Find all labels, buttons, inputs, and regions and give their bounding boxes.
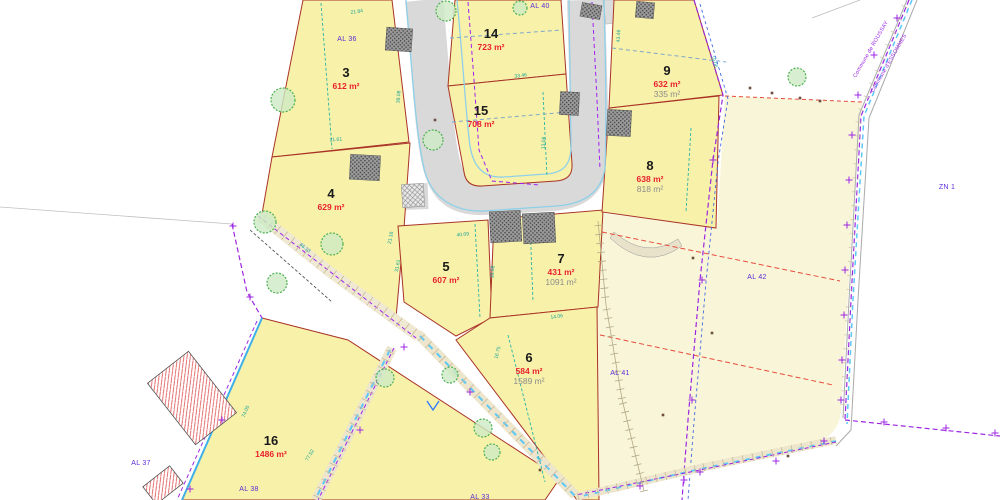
cadastral-ref-al-38: AL 38 (239, 486, 259, 493)
tree-icon (267, 273, 287, 293)
parcel-4-number: 4 (327, 186, 335, 201)
parcel-9-number: 9 (663, 63, 670, 78)
cadastral-ref-al-42: AL 42 (747, 274, 767, 281)
dimension-label: 43.46 (616, 29, 622, 42)
existing-building (349, 154, 380, 181)
parcel-6-area: 584 m² (516, 366, 543, 376)
garage-box (522, 212, 556, 244)
parcel-7-secondary-area: 1091 m² (545, 277, 576, 287)
parcel-15-shape (448, 74, 572, 186)
parcel-9-area: 632 m² (654, 79, 681, 89)
parcel-5-number: 5 (442, 259, 449, 274)
existing-building (559, 92, 579, 116)
parcel-7-area: 431 m² (548, 267, 575, 277)
tree-icon (271, 88, 295, 112)
existing-building (385, 27, 413, 52)
parcel-4-area: 629 m² (318, 202, 345, 212)
tree-icon (442, 367, 458, 383)
parcel-8-secondary-area: 818 m² (637, 184, 664, 194)
cadastral-ref-zn-1: ZN 1 (939, 184, 955, 191)
tree-icon (436, 1, 456, 21)
parcel-3-number: 3 (342, 65, 349, 80)
hatched-house-partial (143, 466, 183, 500)
tree-icon (484, 444, 500, 460)
parcel-3-area: 612 m² (333, 81, 360, 91)
parcel-15-area: 708 m² (468, 119, 495, 129)
dimension-label: 33.08 (489, 265, 496, 278)
cadastral-ref-al-33: AL 33 (470, 494, 490, 500)
parcel-16-number: 16 (264, 433, 278, 448)
dimension-label: 21.61 (329, 136, 342, 143)
parcel-7-number: 7 (557, 251, 564, 266)
parcel-8-area: 638 m² (637, 174, 664, 184)
dimension-label: 13.06 (541, 136, 547, 149)
parcel-15-number: 15 (474, 103, 488, 118)
garage-box (489, 210, 522, 243)
parcel-3-shape (272, 0, 409, 157)
road-reserve-crosshatch (401, 183, 425, 207)
parcel-14-shape (448, 0, 566, 86)
cadastral-plan: 3612 m²4629 m²5607 m²6584 m²1589 m²7431 … (0, 0, 1000, 500)
parcel-6-number: 6 (525, 350, 532, 365)
map-canvas: 3612 m²4629 m²5607 m²6584 m²1589 m²7431 … (0, 0, 1000, 500)
corridor-stream-blue (847, 0, 912, 424)
dimension-label: 31.61 (394, 259, 402, 273)
west-boundary-purple (232, 224, 262, 318)
west-faint-line (0, 207, 232, 224)
tree-icon (513, 1, 527, 15)
faint-line-topright (812, 0, 860, 18)
parcel-6-secondary-area: 1589 m² (513, 376, 544, 386)
cadastral-ref-al-41: AL 41 (610, 370, 630, 377)
commune-boundary-branch (845, 420, 1000, 436)
parcel-9-secondary-area: 335 m² (654, 89, 681, 99)
tree-icon (321, 233, 343, 255)
parcel-5-area: 607 m² (433, 275, 460, 285)
tree-icon (423, 130, 443, 150)
tree-icon (376, 369, 394, 387)
parcel-8-number: 8 (646, 158, 653, 173)
cadastral-ref-al-40: AL 40 (530, 3, 550, 10)
parcel-16-area: 1486 m² (255, 449, 287, 459)
existing-building (606, 109, 631, 136)
existing-building (635, 1, 654, 19)
parcel-14-number: 14 (484, 26, 499, 41)
tree-icon (788, 68, 806, 86)
tree-icon (254, 211, 276, 233)
cadastral-ref-al-36: AL 36 (337, 36, 357, 43)
tree-icon (474, 419, 492, 437)
dimension-label: 39.08 (395, 90, 402, 103)
parcel-14-area: 723 m² (478, 42, 505, 52)
cadastral-ref-al-37: AL 37 (131, 460, 151, 467)
